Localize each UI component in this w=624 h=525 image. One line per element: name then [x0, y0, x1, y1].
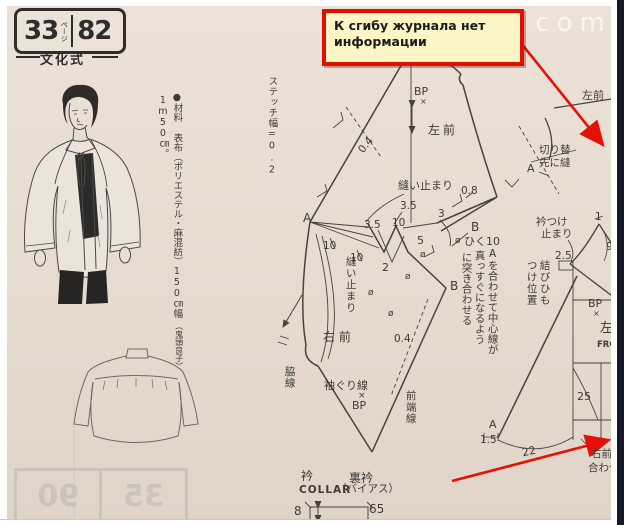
measure-25b: 25: [577, 391, 591, 403]
left-front-cut-label: 左前: [582, 90, 604, 102]
direction-arrow-left: [283, 295, 302, 327]
materials-text: ●材料 表布（ポリエステル・麻混紡）150㎝幅: [171, 92, 182, 318]
measure-35-a: 3.5: [400, 201, 417, 212]
annotation-line-2: информации: [334, 34, 512, 50]
measure-08: 0.8: [461, 186, 478, 197]
page-edge-shadow: [617, 0, 624, 525]
collar-stop-line2: 止まり: [541, 229, 573, 240]
bp-label-mid: BP: [352, 400, 366, 412]
method-rule-left: [16, 56, 40, 58]
measure-2: 2: [382, 262, 389, 274]
materials-credit: （鬼頭良子）: [174, 322, 184, 370]
point-b-mid: B: [450, 280, 458, 293]
tie-position-col2: つけ位置: [525, 260, 538, 306]
right-front-label: 右 前: [323, 331, 351, 344]
armhole-line-label: 袖ぐり線: [324, 380, 368, 392]
collar-front-label: 衿: [301, 470, 313, 483]
seam-stop-top-label: 縫い止まり: [398, 180, 453, 192]
page-word-label: ページ: [60, 21, 67, 42]
instruction-col-3: に突き合わせる: [460, 252, 473, 326]
measure-15: 1.5: [480, 435, 497, 446]
measure-5: 5: [417, 235, 424, 247]
fashion-illustration: [24, 85, 140, 304]
magazine-scan-page: 35 90 e.com: [0, 0, 624, 525]
instruction-col-1: Aを合わせて中心線が: [486, 248, 499, 355]
front-edge-line-label: 前端線: [404, 390, 417, 425]
point-a-grainline: A: [527, 163, 535, 175]
collar-height: 8: [294, 505, 302, 518]
measure-3: 3: [438, 209, 445, 220]
measure-1: 1: [595, 212, 602, 223]
materials-amount: 1m50㎝。: [157, 95, 168, 158]
collar-width: 65: [369, 503, 384, 516]
measure-35-b: 3.5: [364, 220, 381, 231]
red-arrows: [452, 17, 609, 481]
subtract-10-label: ひく10: [464, 236, 500, 248]
point-a-main: A: [303, 212, 311, 225]
tie-position-col1: 結びひも: [538, 260, 551, 306]
measure-10-b: 10: [323, 241, 336, 252]
method-rule-right: [92, 56, 118, 58]
bp-cross-right: ×: [593, 310, 600, 318]
measure-10-a: 10: [392, 218, 405, 229]
bp-label-top: BP: [414, 86, 428, 98]
instruction-col-2: 真っすぐになるよう: [473, 250, 486, 345]
cut-panel-label: 切り替: [539, 145, 571, 156]
pattern-number: 82: [77, 16, 111, 46]
point-a-bottom: A: [489, 419, 497, 431]
annotation-line-1: К сгибу журнала нет: [334, 18, 512, 34]
point-b-top: B: [471, 221, 479, 234]
annotation-note: К сгибу журнала нет информации: [322, 9, 524, 66]
scan-border-bottom: [0, 519, 624, 525]
measure-04-b: 0.4: [394, 334, 411, 345]
page-header-box: 33 ページ 82: [14, 8, 126, 54]
drafting-method-label: 文化式: [40, 49, 85, 68]
bp-label-right: BP: [588, 298, 602, 310]
collar-bias-label: （バイアス）: [336, 484, 399, 495]
collar-stop-line1: 衿つけ: [536, 217, 568, 228]
scan-border-top: [0, 0, 624, 6]
bp-cross-top: ×: [420, 98, 427, 106]
fold-mark-4: ø: [388, 310, 394, 319]
measure-25: 2.5: [555, 251, 572, 262]
fold-mark-2: ø: [420, 251, 426, 260]
measure-22: 22: [521, 445, 537, 459]
fold-mark-3: ø: [405, 273, 411, 282]
fold-mark-1: ø: [455, 237, 461, 246]
stitch-width-label: ステッチ幅=0.2: [266, 76, 277, 177]
fold-mark-5: ø: [368, 289, 374, 298]
page-number: 33: [24, 16, 58, 46]
header-divider: [71, 15, 73, 47]
scan-border-left: [0, 0, 7, 525]
side-line-label: 脇線: [283, 366, 296, 389]
left-front-label: 左前: [428, 124, 458, 137]
sew-first-label: 先に縫: [539, 158, 571, 169]
seam-stop-left-label: 縫い止まり: [344, 256, 357, 314]
